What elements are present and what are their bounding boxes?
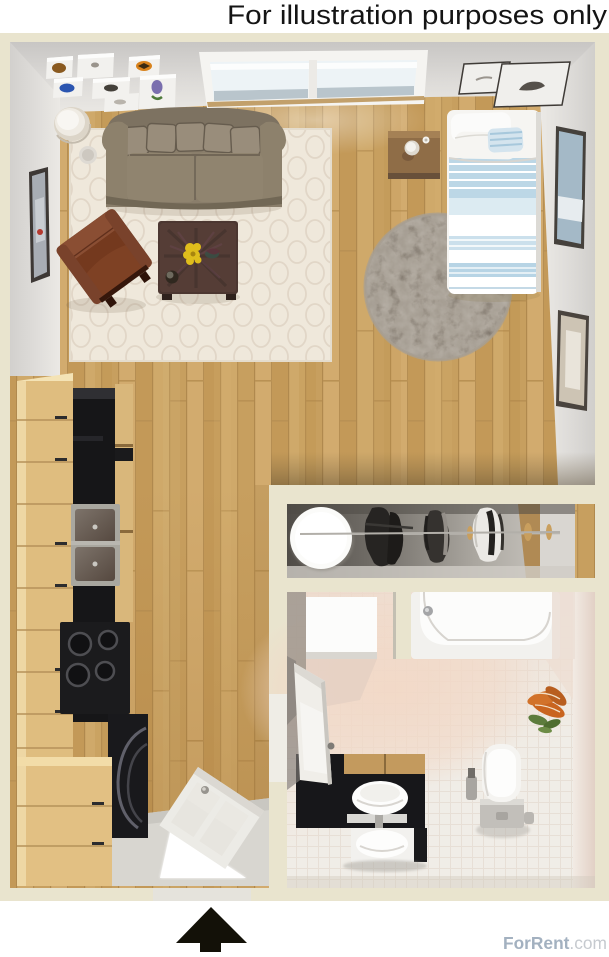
svg-text:ForRent.com: ForRent.com [503, 933, 607, 953]
svg-text:For illustration purposes only: For illustration purposes only [227, 0, 608, 30]
